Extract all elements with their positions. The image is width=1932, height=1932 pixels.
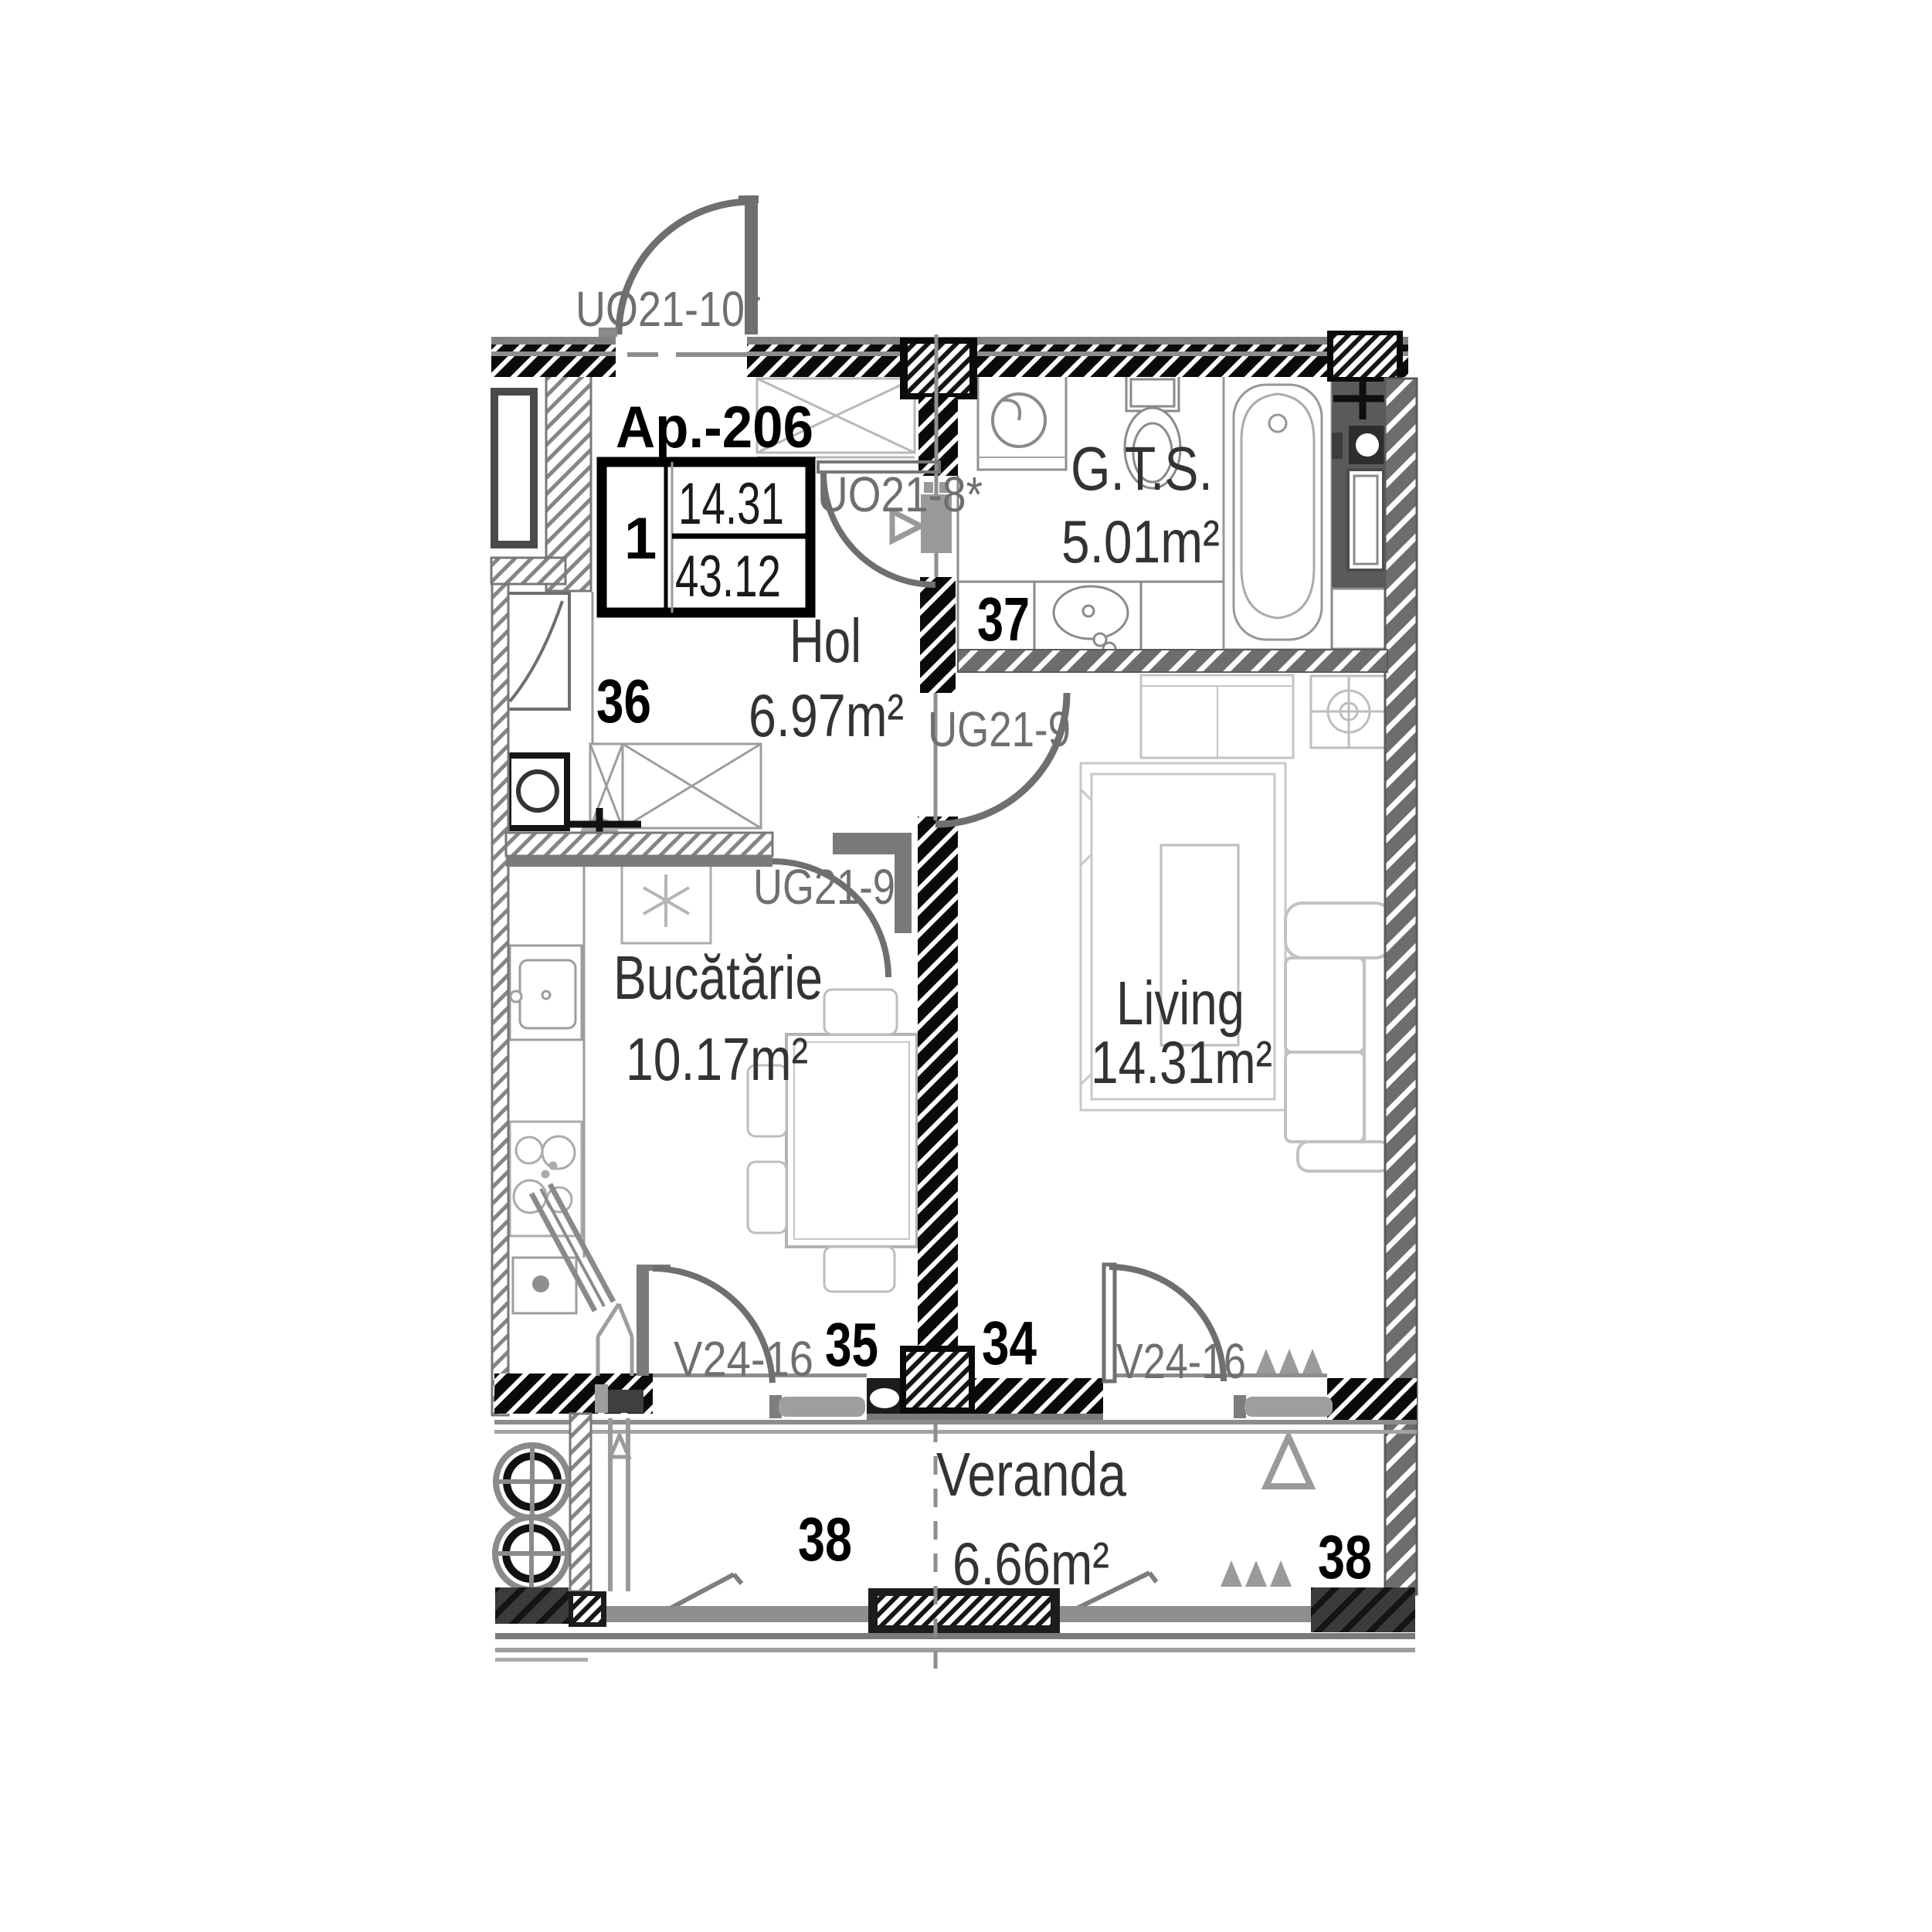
svg-text:34: 34	[982, 1309, 1037, 1377]
svg-text:Hol: Hol	[789, 606, 861, 675]
svg-text:38: 38	[798, 1505, 852, 1574]
svg-text:V24-16: V24-16	[1116, 1333, 1246, 1389]
svg-text:5.01m²: 5.01m²	[1061, 508, 1220, 576]
svg-text:6.66m²: 6.66m²	[952, 1530, 1109, 1598]
svg-text:14.31m²: 14.31m²	[1091, 1028, 1272, 1096]
svg-text:Veranda: Veranda	[936, 1440, 1126, 1509]
svg-text:37: 37	[977, 585, 1030, 654]
svg-text:Ap.-206: Ap.-206	[616, 395, 813, 460]
svg-text:UG21-9: UG21-9	[753, 859, 895, 915]
svg-text:36: 36	[596, 667, 651, 735]
svg-text:UO21-10*: UO21-10*	[576, 281, 761, 337]
svg-text:6.97m²: 6.97m²	[749, 681, 904, 749]
svg-text:1: 1	[624, 506, 657, 572]
svg-text:43.12: 43.12	[675, 544, 781, 609]
svg-text:Living: Living	[1116, 969, 1244, 1037]
svg-text:38: 38	[1318, 1523, 1372, 1591]
svg-text:35: 35	[825, 1310, 878, 1379]
svg-text:10.17m²: 10.17m²	[626, 1025, 808, 1093]
svg-text:UG21-9: UG21-9	[928, 701, 1071, 757]
svg-text:V24-16: V24-16	[674, 1331, 813, 1387]
svg-text:Bucătărie: Bucătărie	[613, 943, 823, 1012]
svg-text:UO21-8*: UO21-8*	[817, 467, 983, 522]
svg-text:14.31: 14.31	[678, 471, 784, 537]
svg-text:G.T.S.: G.T.S.	[1071, 434, 1213, 503]
